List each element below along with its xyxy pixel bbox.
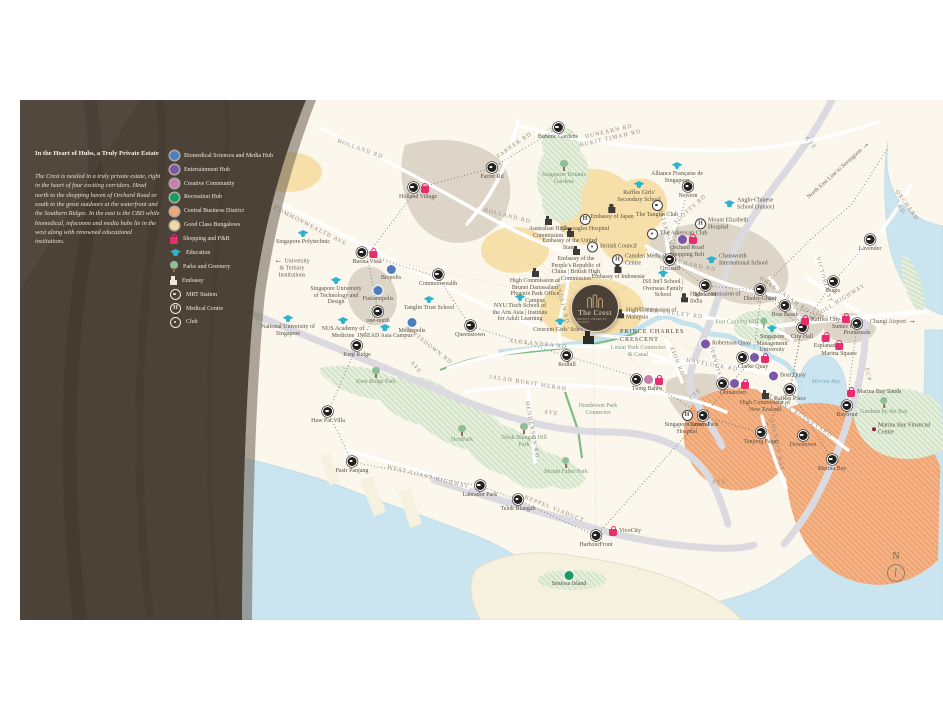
legend-item-parks-and-greenery: Parks and Greenery bbox=[170, 262, 273, 272]
embassy-icon bbox=[532, 268, 539, 277]
point-label: Phoenix Park Office Campus bbox=[507, 291, 563, 304]
brochure-page: DUNEARN RD BUKIT TIMAH RDFARRER RDHOLLAN… bbox=[0, 0, 943, 717]
compass-n-label: N bbox=[882, 552, 910, 562]
map-point-buona-vista: Buona Vista bbox=[352, 247, 381, 266]
hub-entertainment-icon bbox=[170, 165, 179, 174]
education-icon bbox=[338, 317, 349, 325]
shopping-icon bbox=[370, 251, 378, 258]
crest-road-label: PRINCE CHARLES CRESCENT bbox=[620, 328, 684, 345]
medical-icon bbox=[580, 214, 591, 225]
mrt-icon bbox=[561, 350, 572, 361]
map-point-hortpark: HortPark bbox=[451, 425, 473, 444]
embassy-icon bbox=[567, 228, 574, 237]
point-icons bbox=[338, 317, 349, 325]
point-icons bbox=[706, 256, 717, 264]
point-label: Pasir Panjang bbox=[336, 468, 369, 475]
map-point-high-commission-of-india: High Commission of India bbox=[681, 291, 746, 304]
mrt-icon bbox=[827, 454, 838, 465]
map-point-marina-bay: Marina Bay bbox=[812, 378, 841, 386]
poi-icon bbox=[872, 427, 876, 431]
point-label: Embassy of Indonesia bbox=[592, 274, 645, 281]
point-label: High Commission of Malaysia bbox=[626, 307, 680, 320]
education-icon bbox=[706, 256, 717, 264]
point-icons bbox=[681, 294, 688, 303]
point-icons bbox=[352, 340, 363, 351]
map-point-clarke-quay: Clarke Quay bbox=[737, 352, 769, 371]
park-icon bbox=[372, 367, 380, 378]
map-point-telok-blangah-hill-park: Telok Blangah Hill Park bbox=[496, 423, 552, 448]
point-icons bbox=[512, 494, 523, 505]
club-icon bbox=[647, 229, 658, 240]
mrt-icon bbox=[591, 530, 602, 541]
point-icons bbox=[532, 268, 539, 277]
point-label: Marina Bay Financial Centre bbox=[878, 422, 932, 435]
point-label: Bugis bbox=[826, 288, 840, 295]
map-point-singapore-general-hospital: Singapore General Hospital bbox=[659, 410, 715, 435]
point-label: Alliance Française de Singapour bbox=[649, 171, 705, 184]
point-icons bbox=[756, 427, 767, 438]
point-icons bbox=[767, 325, 778, 333]
point-label: Tiong Bahru bbox=[632, 386, 662, 393]
park-icon bbox=[562, 457, 570, 468]
map-point-singapore-management-university: Singapore Management University bbox=[744, 325, 800, 354]
mrt-icon bbox=[357, 247, 368, 258]
point-icons bbox=[658, 270, 669, 278]
education-icon bbox=[380, 324, 391, 332]
mrt-icon bbox=[717, 378, 728, 389]
point-icons bbox=[373, 286, 382, 295]
point-icons bbox=[700, 280, 711, 291]
legend-label: Medical Centre bbox=[186, 306, 223, 312]
legend-item-recreation-hub: Recreation Hub bbox=[170, 193, 273, 203]
map-point-tanglin-trust-school: Tanglin Trust School bbox=[404, 296, 454, 312]
shopping-icon bbox=[761, 356, 769, 363]
point-icons bbox=[631, 374, 663, 385]
map-point-alliance-fran-aise-de-singapour: Alliance Française de Singapour bbox=[649, 162, 705, 184]
education-icon bbox=[555, 318, 566, 326]
point-icons bbox=[591, 530, 602, 541]
map-point-suntec-city: Suntec City bbox=[832, 313, 860, 331]
embassy-icon bbox=[573, 246, 580, 255]
point-icons bbox=[423, 296, 434, 304]
map-point-downtown: Downtown bbox=[790, 430, 817, 449]
map-point-bras-basah: Bras Basah bbox=[771, 300, 798, 319]
embassy-icon bbox=[615, 264, 622, 273]
point-label: Chatsworth International School bbox=[719, 253, 773, 266]
point-icons bbox=[615, 264, 622, 273]
map-point-insead-asia-campus: INSEAD Asia Campus bbox=[357, 324, 412, 340]
map-point-sentosa-island: Sentosa Island bbox=[552, 571, 587, 588]
legend-label: Parks and Greenery bbox=[183, 264, 230, 270]
point-label: Biopolis bbox=[381, 275, 401, 282]
legend-label: Shopping and F&B bbox=[183, 236, 230, 242]
point-label: Marina Bay bbox=[818, 466, 847, 473]
point-label: Botanic Gardens bbox=[538, 134, 578, 141]
park-icon bbox=[170, 261, 178, 272]
point-icons bbox=[387, 265, 396, 274]
point-label: Singapore Management University bbox=[744, 334, 800, 354]
point-icons bbox=[560, 160, 568, 171]
point-label: Commonwealth bbox=[419, 281, 457, 288]
map-point-embassy-of-japan: Embassy of Japan bbox=[590, 204, 633, 221]
point-icons bbox=[347, 456, 358, 467]
panel-description: The Crest is nestled in a truly private … bbox=[35, 172, 161, 247]
point-label: High Commission of India bbox=[690, 291, 744, 304]
shopping-icon bbox=[655, 378, 663, 385]
point-icons bbox=[331, 277, 342, 285]
education-icon bbox=[634, 181, 645, 189]
education-icon bbox=[724, 200, 735, 208]
mrt-icon bbox=[865, 234, 876, 245]
point-label: INSEAD Asia Campus bbox=[357, 333, 412, 340]
embassy-icon bbox=[545, 216, 552, 225]
point-icons bbox=[573, 246, 580, 255]
point-icons bbox=[486, 162, 497, 173]
point-icons bbox=[647, 229, 658, 240]
point-label: Singapore Botanic Gardens bbox=[536, 172, 592, 185]
point-label: Mount Elizabeth Hospital bbox=[708, 217, 762, 230]
mrt-icon bbox=[756, 427, 767, 438]
point-icons bbox=[609, 526, 617, 536]
mrt-icon bbox=[170, 289, 181, 300]
map-point-lavender: Lavender bbox=[859, 234, 882, 253]
map-point-kent-ridge-park: Kent Ridge Park bbox=[356, 367, 396, 386]
legend-label: Recreation Hub bbox=[184, 194, 222, 200]
point-label: Holland Village bbox=[399, 194, 437, 201]
mrt-icon bbox=[352, 340, 363, 351]
mrt-icon bbox=[553, 122, 564, 133]
point-icons bbox=[458, 425, 466, 436]
point-icons bbox=[835, 340, 843, 350]
education-icon bbox=[672, 162, 683, 170]
point-icons bbox=[762, 390, 769, 399]
map-point-mount-faber-park: Mount Faber Park bbox=[544, 457, 588, 476]
point-icons bbox=[865, 234, 876, 245]
medical-icon bbox=[682, 410, 693, 421]
point-icons bbox=[872, 427, 876, 431]
point-icons bbox=[634, 181, 645, 189]
legend-item-embassy: Embassy bbox=[170, 276, 273, 286]
point-icons bbox=[567, 228, 574, 237]
mrt-icon bbox=[486, 162, 497, 173]
compass-north: N bbox=[882, 552, 910, 582]
crest-tagline: AT PRINCE CHARLES CRESCENT bbox=[572, 318, 618, 324]
point-icons bbox=[827, 454, 838, 465]
embassy-icon bbox=[681, 294, 688, 303]
map-point-marina-bay-financial-centre: Marina Bay Financial Centre bbox=[872, 422, 934, 435]
crest-name: The Crest bbox=[578, 309, 612, 317]
mrt-icon bbox=[372, 306, 383, 317]
point-icons bbox=[372, 306, 383, 317]
hub-cbd-icon bbox=[170, 207, 179, 216]
point-label: Gardens by the Bay bbox=[860, 409, 908, 416]
point-icons bbox=[672, 162, 683, 170]
mrt-icon bbox=[512, 494, 523, 505]
hub-entertainment-icon bbox=[701, 340, 710, 349]
point-label: Bayfront bbox=[836, 412, 857, 419]
point-icons bbox=[724, 200, 735, 208]
shopping-icon bbox=[835, 343, 843, 350]
point-label: Clarke Quay bbox=[738, 364, 769, 371]
point-icons bbox=[545, 216, 552, 225]
point-label: Telok Blangah Hill Park bbox=[496, 435, 552, 448]
point-label: HortPark bbox=[451, 437, 473, 444]
map-point-tanjong-pagar: Tanjong Pagar bbox=[744, 427, 779, 446]
point-icons bbox=[682, 410, 693, 421]
map-point-linear-park-connector-canal: Linear Park Connector & Canal bbox=[610, 344, 666, 358]
mrt-icon bbox=[779, 300, 790, 311]
legend-item-entertainment-hub: Entertainment Hub bbox=[170, 165, 273, 175]
mrt-icon bbox=[465, 320, 476, 331]
shopping-icon bbox=[170, 237, 178, 244]
map-point-fusionopolis: Fusionopolis bbox=[362, 286, 393, 303]
legend-item-creative-community: Creative Community bbox=[170, 179, 273, 189]
education-icon bbox=[423, 296, 434, 304]
point-label: NYU Tisch School of the Arts Asia | Inst… bbox=[492, 303, 548, 323]
map-point-farrer-rd: Farrer Rd bbox=[480, 162, 503, 181]
education-icon bbox=[331, 277, 342, 285]
point-label: Kent Ridge bbox=[343, 352, 371, 359]
point-label: Fusionopolis bbox=[362, 296, 393, 303]
point-label: Fort Canning Hill bbox=[715, 320, 758, 327]
point-icons bbox=[561, 350, 572, 361]
map-point-vivocity: VivoCity bbox=[609, 526, 643, 536]
legend-label: Creative Community bbox=[184, 181, 235, 187]
legend-item-shopping-and-f-b: Shopping and F&B bbox=[170, 234, 273, 244]
map-point-singapore-botanic-gardens: Singapore Botanic Gardens bbox=[536, 160, 592, 185]
legend-label: Education bbox=[186, 250, 210, 256]
point-label: High Commission of New Zealand bbox=[737, 400, 793, 413]
point-label: Redhill bbox=[558, 362, 576, 369]
point-icons bbox=[651, 200, 662, 211]
map-point-gardens-by-the-bay: Gardens by the Bay bbox=[860, 397, 908, 416]
info-panel: In the Heart of Hubs, a Truly Private Es… bbox=[20, 100, 320, 620]
hub-entertainment-icon bbox=[769, 372, 778, 381]
point-label: Lavender bbox=[859, 246, 882, 253]
crest-site-icon bbox=[583, 331, 594, 344]
education-icon bbox=[170, 249, 181, 257]
point-icons bbox=[553, 122, 564, 133]
legend-item-central-business-district: Central Business District bbox=[170, 207, 273, 217]
map-point-kent-ridge: Kent Ridge bbox=[343, 340, 371, 359]
map-point-fort-canning-hill: Fort Canning Hill bbox=[713, 318, 768, 329]
point-icons bbox=[779, 300, 790, 311]
point-icons bbox=[827, 276, 838, 287]
mrt-icon bbox=[347, 456, 358, 467]
map-point-high-commission-of-malaysia: High Commission of Malaysia bbox=[617, 307, 682, 320]
map-point-labrador-park: Labrador Park bbox=[463, 480, 498, 499]
point-label: Boat Quay bbox=[780, 373, 806, 380]
point-label: Singapore General Hospital bbox=[659, 422, 715, 435]
legend-label: Biomedical Sciences and Media Hub bbox=[184, 153, 273, 159]
point-label: Suntec City bbox=[832, 324, 860, 331]
park-icon bbox=[520, 423, 528, 434]
point-label: Kent Ridge Park bbox=[356, 379, 396, 386]
map-point-high-commission-of-brunei-darussalam: High Commission of Brunei Darussalam bbox=[507, 268, 563, 291]
mrt-icon bbox=[631, 374, 642, 385]
point-icons bbox=[408, 182, 429, 193]
point-label: Marina Square bbox=[821, 351, 857, 358]
point-icons bbox=[322, 406, 333, 417]
point-label: Queenstown bbox=[455, 332, 485, 339]
medical-icon bbox=[170, 303, 181, 314]
point-label: Tanglin Trust School bbox=[404, 305, 454, 312]
legend-item-education: Education bbox=[170, 248, 273, 258]
map-point-holland-village: Holland Village bbox=[399, 182, 437, 201]
point-label: Marina Bay bbox=[812, 379, 841, 386]
point-icons bbox=[841, 400, 852, 411]
map-point-high-commission-of-new-zealand: High Commission of New Zealand bbox=[737, 390, 793, 413]
shopping-icon bbox=[842, 316, 850, 323]
point-label: Buona Vista bbox=[352, 259, 381, 266]
point-label: Marina Bay Sands bbox=[857, 389, 901, 396]
mrt-icon bbox=[700, 280, 711, 291]
park-icon bbox=[880, 397, 888, 408]
map-point-the-tanglin-club: The Tanglin Club bbox=[636, 200, 678, 219]
mrt-icon bbox=[797, 430, 808, 441]
point-label: Newton bbox=[679, 193, 698, 200]
point-label: Labrador Park bbox=[463, 492, 498, 499]
map-point-marina-bay: Marina Bay bbox=[818, 454, 847, 473]
hub-creative-icon bbox=[644, 375, 653, 384]
point-icons bbox=[717, 378, 749, 389]
point-icons bbox=[380, 324, 391, 332]
park-icon bbox=[560, 160, 568, 171]
map-point-henderson-park-connector: Henderson Park Connector bbox=[570, 402, 626, 416]
hub-gcb-icon bbox=[170, 221, 179, 230]
point-icons bbox=[760, 318, 768, 329]
mrt-icon bbox=[322, 406, 333, 417]
embassy-icon bbox=[608, 204, 615, 213]
point-label: The Tanglin Club bbox=[636, 212, 678, 219]
point-icons bbox=[555, 318, 566, 326]
hub-recreation-icon bbox=[564, 571, 573, 580]
point-icons bbox=[357, 247, 378, 258]
embassy-icon bbox=[170, 276, 177, 285]
point-label: Henderson Park Connector bbox=[570, 403, 626, 416]
point-icons bbox=[755, 284, 766, 295]
point-label: Embassy of Japan bbox=[590, 214, 633, 221]
crest-building-icon bbox=[584, 293, 606, 308]
point-icons bbox=[842, 313, 850, 323]
legend-item-biomedical-sciences-and-media-hub: Biomedical Sciences and Media Hub bbox=[170, 151, 273, 161]
point-label: Telok Blangah bbox=[500, 506, 535, 513]
map-point-marina-bay-sands: Marina Bay Sands bbox=[847, 387, 903, 397]
map-point-harbourfront: HarbourFront bbox=[580, 530, 613, 549]
hub-entertainment-icon bbox=[750, 353, 759, 362]
map-point-pasir-panjang: Pasir Panjang bbox=[336, 456, 369, 475]
map-point-botanic-gardens: Botanic Gardens bbox=[538, 122, 578, 141]
point-icons bbox=[520, 423, 528, 434]
point-icons bbox=[372, 367, 380, 378]
point-icons bbox=[801, 315, 809, 325]
point-label: Bras Basah bbox=[771, 312, 798, 319]
legend-item-medical-centre: Medical Centre bbox=[170, 304, 273, 314]
point-icons bbox=[847, 387, 855, 397]
map-point-tiong-bahru: Tiong Bahru bbox=[631, 374, 663, 393]
point-icons bbox=[880, 397, 888, 408]
hub-biomedical-icon bbox=[170, 151, 179, 160]
map-point-telok-blangah: Telok Blangah bbox=[500, 494, 535, 513]
point-label: Farrer Rd bbox=[480, 174, 503, 181]
mrt-icon bbox=[408, 182, 419, 193]
point-label: Downtown bbox=[790, 442, 817, 449]
mrt-icon bbox=[433, 269, 444, 280]
park-icon bbox=[458, 425, 466, 436]
point-icons bbox=[475, 480, 486, 491]
legend-label: Embassy bbox=[182, 278, 204, 284]
map-point-bugis: Bugis bbox=[826, 276, 840, 295]
map-point-bayfront: Bayfront bbox=[836, 400, 857, 419]
legend-label: Entertainment Hub bbox=[184, 167, 230, 173]
point-label: Sentosa Island bbox=[552, 581, 587, 588]
point-label: British Council bbox=[600, 244, 637, 251]
point-icons bbox=[564, 571, 573, 580]
legend-label: MRT Station bbox=[186, 292, 217, 298]
map-point-redhill: Redhill bbox=[558, 350, 576, 369]
club-icon bbox=[651, 200, 662, 211]
mrt-icon bbox=[755, 284, 766, 295]
park-icon bbox=[760, 318, 768, 329]
point-label: Promenade bbox=[844, 330, 871, 337]
legend-label: Central Business District bbox=[184, 208, 244, 214]
map-point-chatsworth-international-school: Chatsworth International School bbox=[706, 253, 775, 266]
point-label: Anglo-Chinese School (Junior) bbox=[737, 197, 791, 210]
legend-item-good-class-bungalows: Good Class Bungalows bbox=[170, 220, 273, 230]
hub-biomedical-icon bbox=[373, 286, 382, 295]
point-label: Mount Faber Park bbox=[544, 469, 588, 476]
shopping-icon bbox=[801, 318, 809, 325]
map-point-embassy-of-indonesia: Embassy of Indonesia bbox=[592, 264, 645, 281]
embassy-icon bbox=[762, 390, 769, 399]
location-map: DUNEARN RD BUKIT TIMAH RDFARRER RDHOLLAN… bbox=[20, 100, 943, 620]
education-icon bbox=[658, 270, 669, 278]
hub-creative-icon bbox=[170, 179, 179, 188]
point-label: VivoCity bbox=[619, 528, 641, 535]
hub-biomedical-icon bbox=[387, 265, 396, 274]
point-icons bbox=[433, 269, 444, 280]
map-point-commonwealth: Commonwealth bbox=[419, 269, 457, 288]
map-legend: Biomedical Sciences and Media HubEnterta… bbox=[170, 151, 273, 327]
map-point-anglo-chinese-school-junior: Anglo-Chinese School (Junior) bbox=[724, 197, 793, 210]
legend-item-club: Club bbox=[170, 318, 273, 328]
map-point-biopolis: Biopolis bbox=[381, 265, 401, 282]
hub-recreation-icon bbox=[170, 193, 179, 202]
point-icons bbox=[769, 372, 778, 381]
point-icons bbox=[580, 214, 591, 225]
point-icons bbox=[608, 204, 615, 213]
shopping-icon bbox=[741, 382, 749, 389]
hub-entertainment-icon bbox=[730, 379, 739, 388]
map-point-queenstown: Queenstown bbox=[455, 320, 485, 339]
point-label: The American Club bbox=[660, 231, 707, 238]
shopping-icon bbox=[847, 390, 855, 397]
legend-label: Club bbox=[186, 319, 198, 325]
education-icon bbox=[767, 325, 778, 333]
shopping-icon bbox=[609, 529, 617, 536]
club-icon bbox=[170, 317, 181, 328]
mrt-icon bbox=[841, 400, 852, 411]
the-crest-marker: The Crest AT PRINCE CHARLES CRESCENT bbox=[571, 284, 617, 330]
point-label: Linear Park Connector & Canal bbox=[610, 345, 666, 358]
panel-title: In the Heart of Hubs, a Truly Private Es… bbox=[35, 150, 163, 159]
point-label: Tanjong Pagar bbox=[744, 439, 779, 446]
map-point-boat-quay: Boat Quay bbox=[769, 372, 808, 381]
compass-emblem-icon bbox=[887, 564, 905, 582]
map-point-marina-square: Marina Square bbox=[821, 340, 857, 358]
map-point-the-american-club: The American Club bbox=[647, 229, 709, 240]
shopping-icon bbox=[421, 186, 429, 193]
